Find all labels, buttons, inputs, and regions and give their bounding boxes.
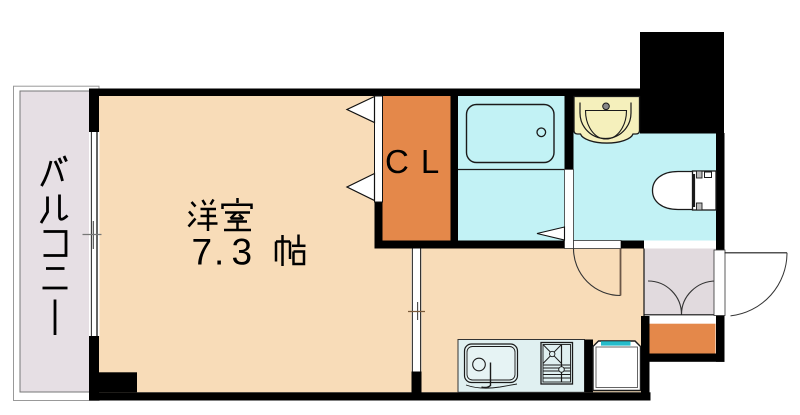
svg-text:7: 7 xyxy=(192,232,213,273)
svg-text:3: 3 xyxy=(232,232,253,273)
svg-text:CL: CL xyxy=(385,143,451,180)
svg-text:.: . xyxy=(214,232,224,273)
